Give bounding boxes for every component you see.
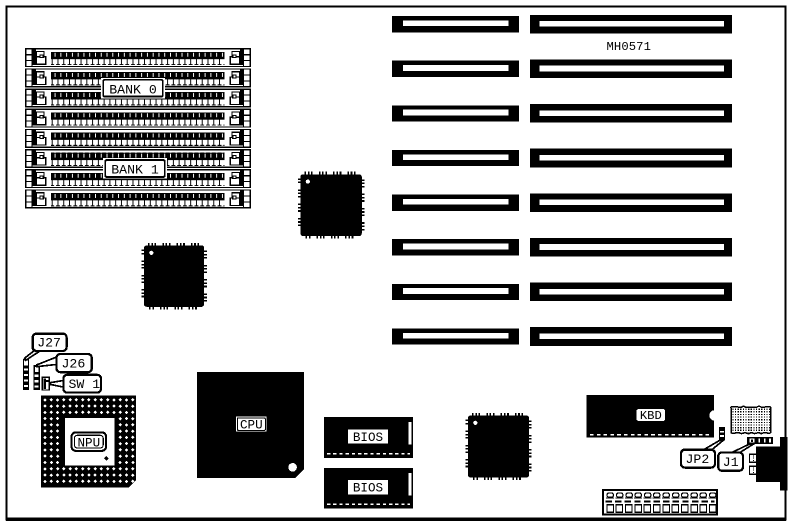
svg-text:J1: J1 bbox=[723, 455, 739, 470]
svg-text:SW 1: SW 1 bbox=[69, 377, 101, 392]
svg-text:NPU: NPU bbox=[77, 436, 100, 450]
svg-text:J27: J27 bbox=[37, 335, 61, 350]
svg-text:BANK 1: BANK 1 bbox=[111, 163, 159, 178]
svg-text:BIOS: BIOS bbox=[353, 482, 383, 496]
svg-text:J26: J26 bbox=[62, 357, 86, 372]
svg-text:CPU: CPU bbox=[240, 419, 263, 433]
svg-text:KBD: KBD bbox=[640, 409, 662, 423]
svg-text:MH0571: MH0571 bbox=[607, 40, 651, 54]
svg-text:JP2: JP2 bbox=[686, 452, 710, 467]
svg-text:BIOS: BIOS bbox=[353, 431, 383, 445]
svg-text:BANK 0: BANK 0 bbox=[109, 82, 157, 97]
